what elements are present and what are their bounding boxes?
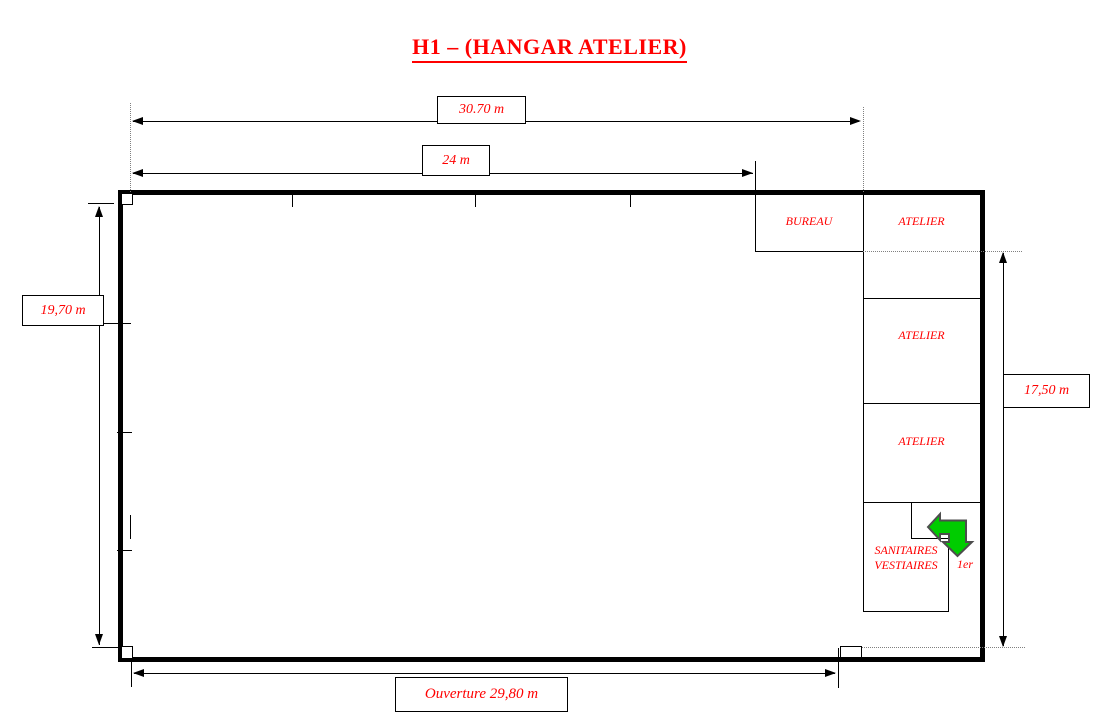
left-wall-opening-mark [130, 515, 131, 539]
dim-top-outer-label-box: 30.70 m [437, 96, 526, 124]
room-label-atelier-1: ATELIER [863, 192, 980, 251]
dim-right-bottom-guide [841, 647, 1025, 648]
opening-notch-bottom-right [840, 646, 862, 658]
arrowhead-down-icon [999, 636, 1007, 647]
dim-left-label-box: 19,70 m [22, 295, 104, 326]
stairs-arrow-shape [928, 514, 972, 556]
stairs-direction-arrow-icon [920, 508, 980, 563]
arrowhead-left-icon [132, 169, 143, 177]
top-wall-tick [630, 195, 631, 207]
left-wall-tick [117, 432, 132, 433]
dim-top-inner-label: 24 m [442, 153, 470, 169]
left-wall-tick [117, 550, 132, 551]
arrowhead-left-icon [132, 117, 143, 125]
room-label-atelier-2: ATELIER [863, 320, 980, 350]
dim-bottom-label: Ouverture 29,80 m [425, 686, 538, 703]
room-label-atelier-3: ATELIER [863, 426, 980, 456]
atelier-2-label-text: ATELIER [898, 328, 944, 343]
room-divider-wall [863, 298, 980, 299]
building-outline [118, 190, 985, 662]
room-label-bureau: BUREAU [755, 192, 863, 251]
opening-notch-top-left [121, 193, 133, 205]
top-wall-tick [292, 195, 293, 207]
dim-bottom-label-box: Ouverture 29,80 m [395, 677, 568, 712]
opening-notch-bottom-left [121, 646, 133, 659]
room-divider-wall [863, 502, 980, 503]
arrowhead-down-icon [95, 634, 103, 645]
extension-guide-right [863, 107, 864, 192]
atelier-3-label-text: ATELIER [898, 434, 944, 449]
bureau-label-text: BUREAU [786, 214, 833, 229]
atelier-1-label-text: ATELIER [898, 214, 944, 229]
extension-guide-left [130, 103, 131, 192]
room-divider-wall [863, 403, 980, 404]
arrowhead-right-icon [742, 169, 753, 177]
dim-left-label: 19,70 m [40, 303, 85, 319]
dim-right-line [1003, 253, 1004, 646]
dim-right-label: 17,50 m [1024, 383, 1069, 399]
page-title: H1 – (HANGAR ATELIER) [412, 34, 687, 63]
arrowhead-right-icon [825, 669, 836, 677]
dim-top-outer-label: 30.70 m [459, 102, 504, 118]
arrowhead-right-icon [850, 117, 861, 125]
arrowhead-left-icon [133, 669, 144, 677]
dim-right-top-guide [863, 251, 1022, 252]
bureau-bottom-wall [755, 251, 863, 252]
dim-top-inner-label-box: 24 m [422, 145, 490, 176]
top-wall-tick [475, 195, 476, 207]
arrowhead-up-icon [999, 252, 1007, 263]
dim-right-label-box: 17,50 m [1003, 374, 1090, 408]
dim-left-line [99, 207, 100, 645]
left-wall-tick [102, 323, 131, 324]
stair-notch-wall-v [911, 502, 912, 539]
sanitaires-bottom-wall [863, 611, 949, 612]
floor-plan: H1 – (HANGAR ATELIER) 30.70 m 24 m 19,70… [0, 0, 1099, 725]
page-title-row: H1 – (HANGAR ATELIER) [0, 34, 1099, 63]
dim-left-top-tick [88, 203, 114, 204]
arrowhead-up-icon [95, 206, 103, 217]
dim-bottom-line [134, 673, 835, 674]
